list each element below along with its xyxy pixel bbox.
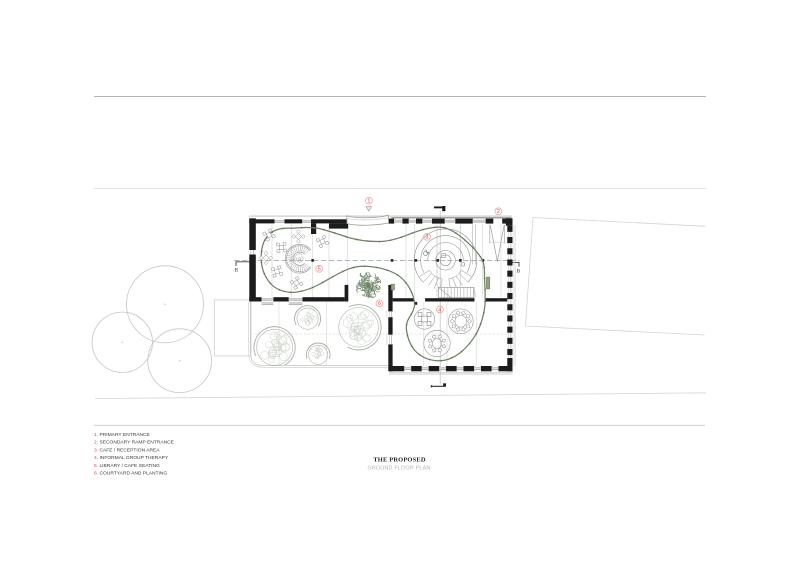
svg-text:THE PROPOSED: THE PROPOSED	[373, 456, 425, 463]
svg-text:1: 1	[367, 199, 370, 205]
svg-text:3: 3	[426, 235, 429, 241]
svg-text:6: 6	[378, 301, 381, 307]
svg-text:5: 5	[318, 267, 321, 273]
svg-text:4. INFORMAL GROUP THERAPY: 4. INFORMAL GROUP THERAPY	[94, 455, 169, 461]
svg-text:3. CAFE / RECEPTION AREA: 3. CAFE / RECEPTION AREA	[94, 447, 160, 453]
svg-text:GROUND FLOOR PLAN: GROUND FLOOR PLAN	[367, 465, 430, 471]
svg-text:5. LIBRARY / CAFE SEATING: 5. LIBRARY / CAFE SEATING	[94, 463, 160, 469]
svg-text:4: 4	[438, 307, 441, 313]
svg-text:2: 2	[497, 209, 500, 215]
svg-text:1. PRIMARY ENTRANCE: 1. PRIMARY ENTRANCE	[94, 432, 151, 438]
svg-text:6. COURTYARD AND PLANTING: 6. COURTYARD AND PLANTING	[94, 471, 167, 477]
svg-text:2. SECONDARY RAMP ENTRANCE: 2. SECONDARY RAMP ENTRANCE	[94, 440, 175, 446]
